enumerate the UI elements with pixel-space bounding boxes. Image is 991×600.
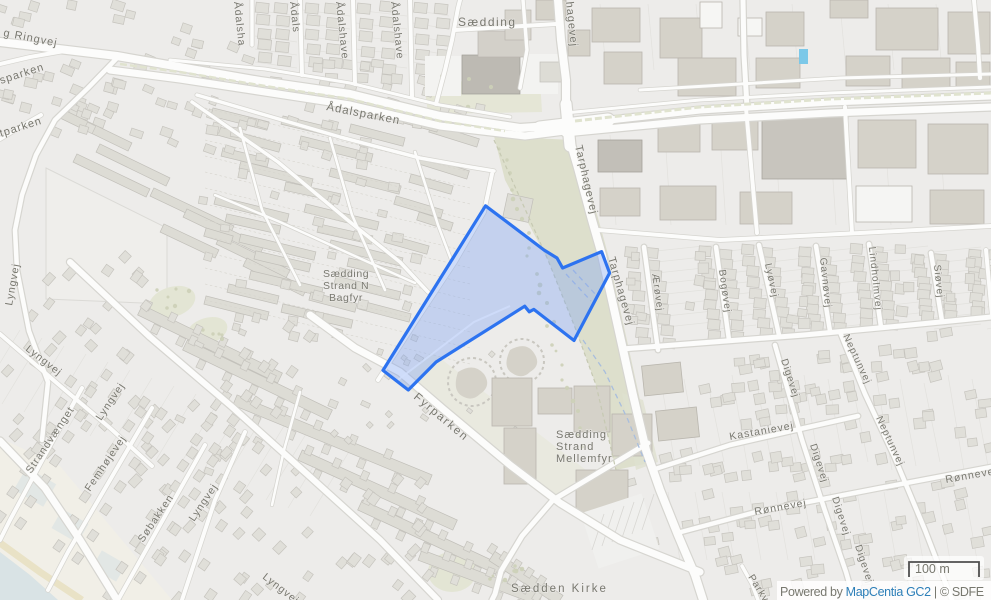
svg-text:Strand: Strand xyxy=(556,441,594,453)
svg-text:100 m: 100 m xyxy=(915,562,950,576)
svg-text:Sædding: Sædding xyxy=(323,268,369,280)
svg-text:Powered by MapCentia GC2 | © S: Powered by MapCentia GC2 | © SDFE xyxy=(780,585,984,599)
svg-text:Sædding: Sædding xyxy=(458,15,517,29)
svg-text:Strand N: Strand N xyxy=(323,280,369,292)
svg-text:Sædding: Sædding xyxy=(556,429,607,441)
svg-text:Bagfyr: Bagfyr xyxy=(329,292,363,304)
svg-text:Sædden Kirke: Sædden Kirke xyxy=(511,583,608,595)
svg-text:Mellemfyr: Mellemfyr xyxy=(556,453,613,465)
